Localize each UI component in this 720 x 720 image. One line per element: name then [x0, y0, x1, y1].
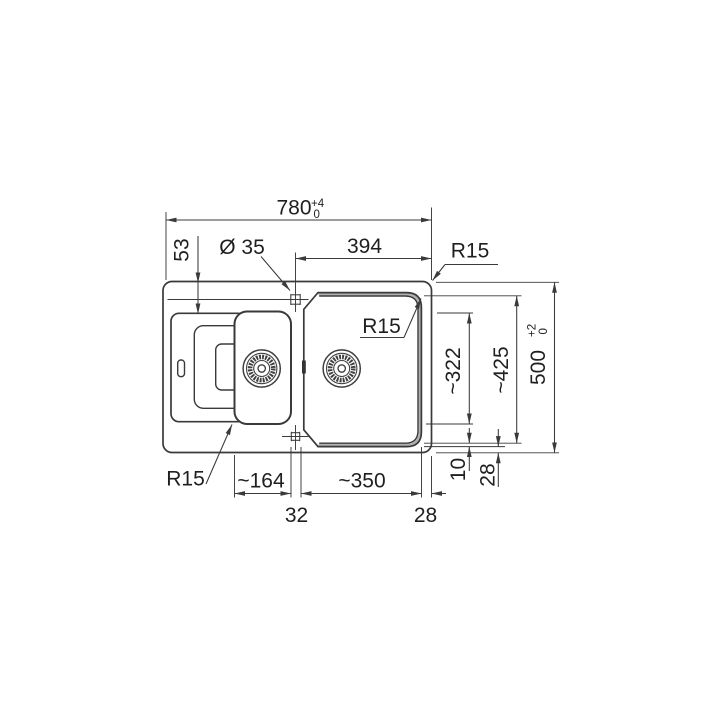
label-overall-depth-group: 500 +2 0 — [527, 324, 551, 385]
label-bowl-to-front-edge-group: 28 — [477, 463, 500, 486]
label-center-web: 32 — [285, 504, 308, 527]
label-radius-outer: R15 — [451, 240, 490, 263]
label-half-bowl-width: ~164 — [237, 470, 285, 493]
label-radius-half-bowl: R15 — [166, 468, 205, 491]
label-half-bowl-length: ~322 — [442, 347, 465, 394]
label-bowl-to-front-edge: 28 — [477, 463, 500, 486]
label-radius-main-bowl: R15 — [362, 315, 401, 338]
drainboard-drain-slot — [178, 360, 185, 377]
label-main-bowl-length-group: ~425 — [490, 346, 513, 393]
label-overall-width-tol-bottom: 0 — [314, 209, 320, 221]
label-rim-gap: 10 — [447, 458, 470, 481]
label-tap-to-right-edge: 394 — [347, 235, 382, 258]
leader-radius-half-bowl — [206, 425, 232, 485]
label-half-bowl-length-group: ~322 — [442, 347, 465, 394]
leader-radius-outer — [433, 265, 446, 281]
label-tap-to-rear-edge: 53 — [171, 238, 194, 261]
label-overall-depth: 500 — [527, 350, 550, 385]
label-main-bowl-width: ~350 — [338, 470, 385, 493]
label-overall-depth-tol-top: +2 — [527, 324, 539, 337]
drawing-canvas: 780 +4 0 Ø 35 394 R15 53 R15 R15 ~164 ~3… — [0, 0, 720, 720]
label-tap-to-rear-edge-group: 53 — [171, 238, 194, 261]
label-tap-hole-dia: Ø 35 — [219, 236, 265, 259]
label-main-bowl-length: ~425 — [490, 346, 513, 393]
label-edge-to-bowl-right: 28 — [414, 504, 437, 527]
label-overall-depth-tol-bottom: 0 — [538, 328, 550, 334]
label-overall-width: 780 — [276, 197, 311, 220]
label-rim-gap-group: 10 — [447, 458, 470, 481]
sink-body — [163, 282, 432, 453]
bowl-divider-notch — [302, 361, 306, 374]
sink-technical-drawing: 780 +4 0 Ø 35 394 R15 53 R15 R15 ~164 ~3… — [0, 0, 720, 720]
leader-tap-hole-dia — [261, 257, 290, 291]
